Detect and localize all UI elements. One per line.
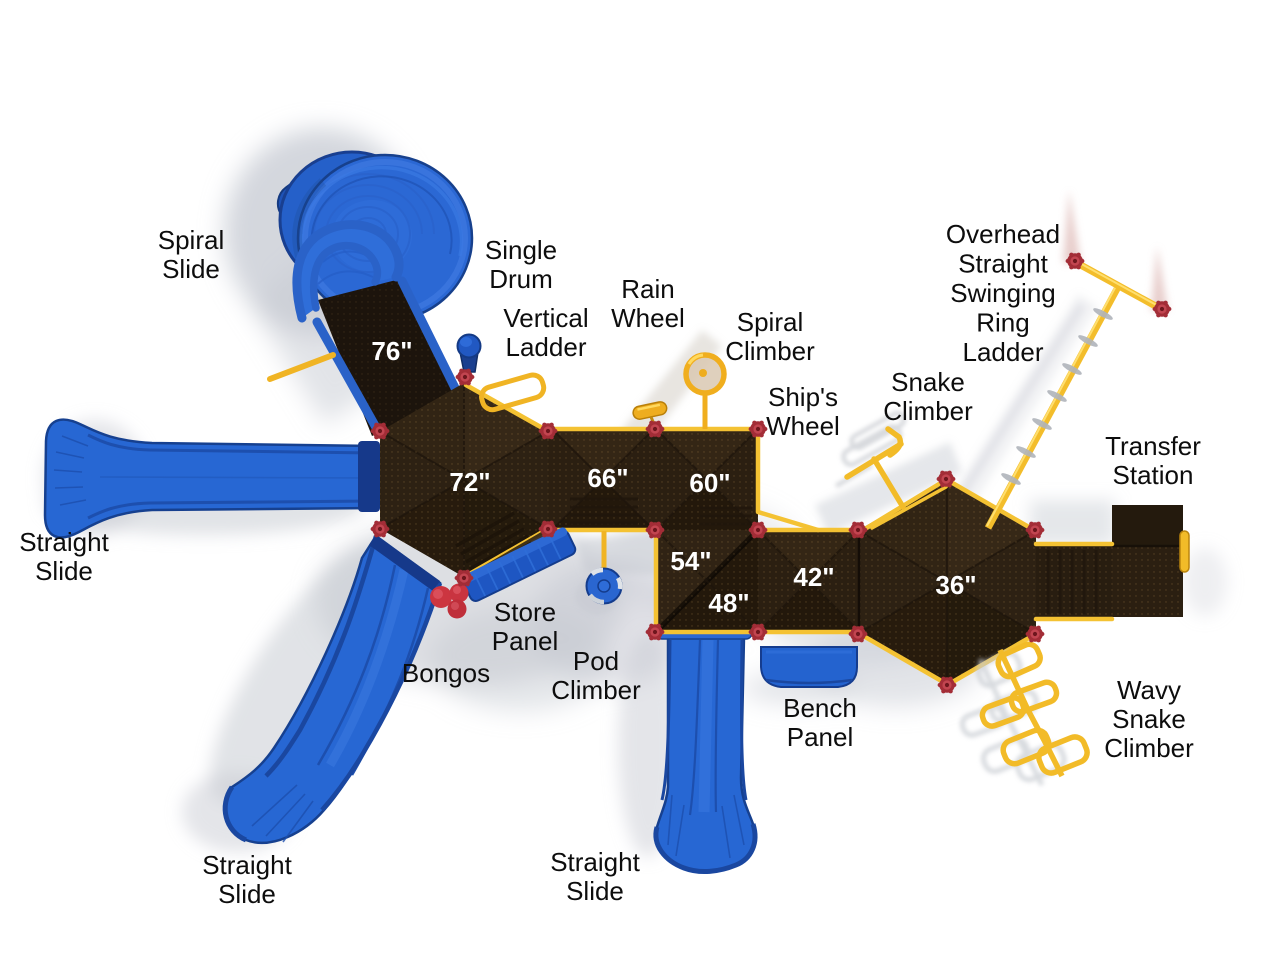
svg-text:Bongos: Bongos	[402, 658, 490, 688]
svg-text:Spiral: Spiral	[158, 225, 224, 255]
svg-text:Transfer: Transfer	[1105, 431, 1201, 461]
svg-text:Pod: Pod	[573, 646, 619, 676]
svg-text:Straight: Straight	[550, 847, 640, 877]
svg-text:Climber: Climber	[725, 336, 815, 366]
svg-text:Station: Station	[1113, 460, 1194, 490]
svg-text:36": 36"	[935, 570, 976, 600]
svg-text:Snake: Snake	[1112, 704, 1186, 734]
svg-text:Climber: Climber	[883, 396, 973, 426]
svg-text:Drum: Drum	[489, 264, 553, 294]
svg-text:Wheel: Wheel	[611, 303, 685, 333]
svg-text:Ring: Ring	[976, 308, 1029, 338]
svg-text:Bench: Bench	[783, 693, 857, 723]
svg-text:Climber: Climber	[1104, 733, 1194, 763]
svg-text:Ladder: Ladder	[963, 337, 1044, 367]
svg-text:60": 60"	[689, 468, 730, 498]
svg-text:Panel: Panel	[492, 626, 559, 656]
svg-text:Single: Single	[485, 235, 557, 265]
svg-text:Overhead: Overhead	[946, 219, 1060, 249]
svg-text:Straight: Straight	[19, 527, 109, 557]
svg-text:Store: Store	[494, 597, 556, 627]
svg-text:Straight: Straight	[958, 249, 1048, 279]
svg-text:Climber: Climber	[551, 675, 641, 705]
svg-text:48": 48"	[708, 588, 749, 618]
svg-text:Wheel: Wheel	[766, 411, 840, 441]
svg-text:Panel: Panel	[787, 722, 854, 752]
svg-text:Snake: Snake	[891, 367, 965, 397]
svg-text:Straight: Straight	[202, 850, 292, 880]
svg-text:Ship's: Ship's	[768, 382, 838, 412]
svg-text:54": 54"	[670, 546, 711, 576]
svg-text:Slide: Slide	[218, 879, 276, 909]
svg-text:72": 72"	[449, 467, 490, 497]
svg-text:Vertical: Vertical	[503, 303, 588, 333]
svg-text:Ladder: Ladder	[506, 332, 587, 362]
svg-text:Slide: Slide	[162, 254, 220, 284]
svg-text:76": 76"	[371, 336, 412, 366]
svg-text:Wavy: Wavy	[1117, 675, 1181, 705]
svg-text:Swinging: Swinging	[950, 278, 1056, 308]
svg-text:42": 42"	[793, 562, 834, 592]
svg-text:Slide: Slide	[35, 556, 93, 586]
svg-text:Rain: Rain	[621, 274, 674, 304]
svg-text:Spiral: Spiral	[737, 307, 803, 337]
svg-text:Slide: Slide	[566, 876, 624, 906]
svg-text:66": 66"	[587, 463, 628, 493]
